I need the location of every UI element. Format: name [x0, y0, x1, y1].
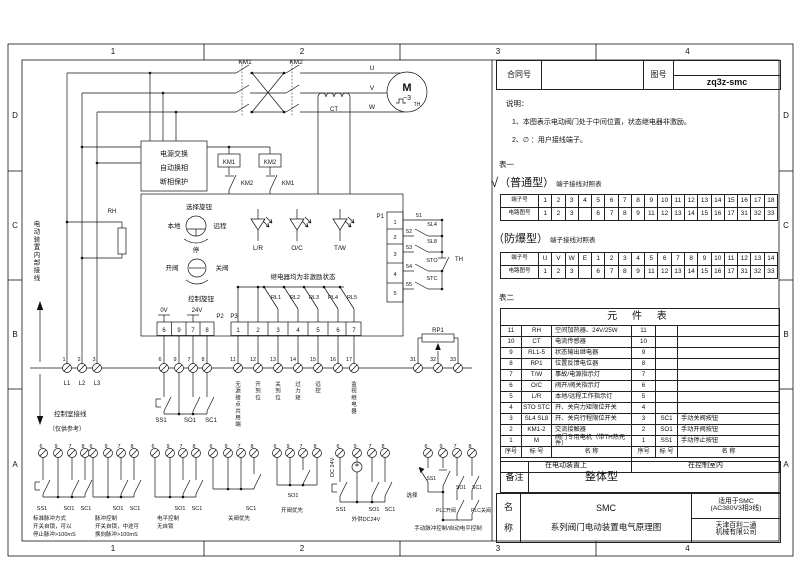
component-cell: 3: [632, 414, 656, 425]
component-cell: 电流传感器: [552, 337, 632, 348]
label-g2-n8: 8: [130, 444, 133, 450]
component-cell: L/R: [522, 392, 552, 403]
label-g1-d2: 开关自锁，可以: [33, 522, 72, 530]
label-g3-n9: 9: [166, 444, 169, 450]
label-g1-ss1: SS1: [37, 506, 47, 512]
circuit-no-cell: 33: [765, 266, 778, 279]
component-cell: 6: [501, 381, 522, 392]
component-cell: SC1: [656, 414, 678, 425]
label-g6-n7: 7: [368, 444, 371, 450]
terminal-no-cell: 5: [592, 195, 605, 208]
component-cell: 10: [632, 337, 656, 348]
circuit-no-cell: 9: [632, 208, 645, 221]
label-p1: P1: [377, 214, 385, 220]
drawing-title: 系列阀门电动装置电气原理图: [551, 523, 662, 532]
label-g1-so1: SO1: [63, 506, 74, 512]
label-g1-d3: 停止脉冲>100mS: [33, 530, 76, 538]
component-footer-header: 标 号: [656, 447, 678, 458]
label-p1-c4: 4: [393, 272, 396, 278]
terminal-no-cell: 3: [566, 195, 579, 208]
explosion-terminal-table: 端子号UVWE1234567891011121314电路图号1236789111…: [500, 252, 778, 279]
component-cell: [678, 337, 780, 348]
component-cell: 2: [501, 425, 522, 436]
label-g2-sc1: SC1: [130, 506, 141, 512]
terminal-no-cell: 11: [725, 253, 738, 266]
label-lamp-tw-label: T/W: [334, 245, 347, 252]
circuit-no-header: 电路图号: [501, 208, 539, 221]
terminal-no-cell: V: [552, 253, 565, 266]
label-tnum-16: 16: [330, 357, 336, 363]
label-l2: L2: [79, 381, 86, 387]
label-g7-n9: 9: [439, 444, 442, 450]
label-control-knob-label: 控制旋钮: [188, 294, 215, 303]
label-rl5: RL5: [347, 295, 357, 301]
label-p1-c3: 3: [393, 252, 396, 258]
component-cell: 开、关向行程限位开关: [552, 414, 632, 425]
grid-row-label-right: C: [776, 219, 796, 233]
circuit-no-cell: 6: [592, 266, 605, 279]
circuit-no-cell: 13: [672, 208, 685, 221]
label-km1-contact: KM1: [238, 59, 252, 66]
label-tnum-14: 14: [290, 357, 296, 363]
label-ov: 0V: [160, 308, 167, 314]
label-g6-dc24: DC 24V: [330, 457, 336, 477]
component-cell: 9: [501, 348, 522, 359]
label-g5-n8: 8: [313, 444, 316, 450]
label-ref-only: （仅供参考）: [49, 425, 85, 433]
component-cell: [678, 326, 780, 337]
label-g1-n6: 6: [39, 444, 42, 450]
component-cell: [678, 370, 780, 381]
component-cell: 2: [632, 425, 656, 436]
component-footer-header: 名 称: [552, 447, 632, 458]
label-g7-n7: 7: [453, 444, 456, 450]
component-cell: 手动开阀按钮: [678, 425, 780, 436]
label-phase-w: W: [369, 104, 376, 111]
component-footer-header: 名 称: [678, 447, 780, 458]
label-tnum-2: 2: [77, 357, 80, 363]
label-open-valve: 开阀: [166, 263, 179, 272]
circuit-no-cell: [579, 208, 592, 221]
circuit-no-cell: [579, 266, 592, 279]
circuit-no-cell: 17: [725, 208, 738, 221]
terminal-no-cell: 10: [712, 253, 725, 266]
label-p3-7: 7: [352, 328, 356, 334]
label-g7-sc1: SC1: [472, 485, 482, 491]
table1-caption: 表一: [499, 161, 514, 169]
label-tnum-6: 6: [158, 357, 161, 363]
label-selector-knob-label: 选择旋钮: [186, 202, 213, 211]
terminal-no-cell: 1: [539, 195, 552, 208]
terminal-no-cell: 3: [619, 253, 632, 266]
grid-row-label-left: B: [5, 328, 25, 342]
grid-col-label-bottom: 3: [488, 542, 508, 556]
label-p2: P2: [216, 314, 224, 320]
component-footer-header: 序号: [632, 447, 656, 458]
circuit-no-cell: 16: [712, 208, 725, 221]
label-g3-n7: 7: [179, 444, 182, 450]
normal-terminal-table: 端子号123456789101112131415161718电路图号123678…: [500, 194, 778, 221]
circuit-no-cell: 31: [738, 266, 751, 279]
circuit-no-cell: 1: [539, 208, 552, 221]
terminal-no-header: 端子号: [501, 195, 539, 208]
terminal-no-cell: 9: [698, 253, 711, 266]
circuit-no-cell: 16: [712, 266, 725, 279]
label-close-pos: 关到位: [275, 380, 281, 401]
label-p1-c2: 2: [393, 235, 396, 241]
component-cell: 8: [501, 359, 522, 370]
component-table-title: 元 件 表: [501, 309, 780, 326]
drawing-no-value: zq3z-smc: [674, 75, 780, 90]
label-g6-so1: SO1: [368, 507, 379, 513]
remark-value: 整体型: [529, 462, 780, 492]
terminal-no-cell: 17: [751, 195, 764, 208]
label-w55: 55: [406, 282, 412, 288]
component-cell: O/C: [522, 381, 552, 392]
component-cell: [678, 359, 780, 370]
label-so1-main: SO1: [184, 418, 197, 424]
component-cell: T/W: [522, 370, 552, 381]
label-tnum-8: 8: [201, 357, 204, 363]
circuit-no-cell: 6: [592, 208, 605, 221]
drawing-no-label: 图号: [643, 61, 673, 89]
label-open-pos: 开到位: [255, 381, 261, 401]
label-tnum-33: 33: [450, 357, 456, 363]
label-g6-n9: 9: [353, 444, 356, 450]
grid-col-label-bottom: 1: [103, 542, 123, 556]
circuit-no-cell: 2: [552, 266, 565, 279]
label-stc: STC: [427, 276, 438, 282]
label-lamp-oc-label: O/C: [291, 245, 303, 252]
circuit-no-cell: 8: [619, 208, 632, 221]
circuit-no-cell: 12: [658, 208, 671, 221]
grid-row-label-right: D: [776, 109, 796, 123]
label-g7-d1: 手动脉冲控制/自动电平控制: [414, 524, 482, 532]
label-p3-1: 1: [236, 328, 240, 334]
label-g3-sc1: SC1: [192, 506, 203, 512]
terminal-no-cell: 8: [685, 253, 698, 266]
circuit-no-cell: 13: [672, 266, 685, 279]
label-rl3: RL3: [309, 295, 319, 301]
terminal-no-cell: 11: [672, 195, 685, 208]
note-item-1: 1、本图表示电动阀门处于中间位置，状态继电器非激励。: [512, 119, 691, 126]
label-control-room-wiring: 控制室接线: [54, 409, 87, 418]
component-cell: SS1: [656, 436, 678, 447]
label-g2-d1: 脉冲控制: [95, 514, 118, 522]
product-name: SMC: [596, 504, 616, 513]
label-g2-n9: 9: [104, 444, 107, 450]
circuit-no-cell: 12: [658, 266, 671, 279]
name-char-1: 名: [504, 503, 513, 512]
component-footer-header: 序号: [501, 447, 522, 458]
component-cell: 开、关向力矩限位开关: [552, 403, 632, 414]
grid-row-label-left: A: [5, 458, 25, 472]
grid-row-label-left: D: [5, 109, 25, 123]
label-w53: 53: [406, 245, 412, 251]
label-tnum-3: 3: [92, 357, 95, 363]
label-power-line3: 断相保护: [160, 177, 188, 186]
component-cell: [656, 392, 678, 403]
label-p2-6: 6: [162, 328, 166, 334]
label-interlock-km2: KM2: [241, 181, 254, 187]
label-p3-4: 4: [296, 328, 300, 334]
terminal-no-cell: 4: [632, 253, 645, 266]
grid-row-label-right: B: [776, 328, 796, 342]
label-ss1-main: SS1: [155, 418, 167, 424]
grid-col-label-top: 2: [292, 45, 312, 59]
label-p3-6: 6: [336, 328, 340, 334]
label-g4-d1: 关阀优先: [228, 514, 251, 522]
label-remote: 远程: [214, 221, 228, 230]
drawing-header: 合同号 图号 zq3z-smc: [496, 60, 781, 90]
component-cell: 1: [501, 436, 522, 447]
label-tnum-7: 7: [187, 357, 190, 363]
terminal-no-cell: 14: [712, 195, 725, 208]
label-g4-n7: 7: [237, 444, 240, 450]
remark-row: 备注 整体型: [500, 461, 781, 493]
component-cell: RP1: [522, 359, 552, 370]
component-cell: [656, 381, 678, 392]
terminal-no-cell: 18: [765, 195, 778, 208]
label-tnum-31: 31: [410, 357, 416, 363]
terminal-no-cell: 5: [645, 253, 658, 266]
label-motor-3ph: ~3: [403, 95, 411, 102]
title-block: 名 称 SMC 系列阀门电动装置电气原理图 适用于SMC (AC380V3相3线…: [496, 493, 781, 543]
label-over-torque: 过力矩: [295, 380, 301, 401]
label-tnum-15: 15: [310, 357, 316, 363]
component-cell: RL1-5: [522, 348, 552, 359]
component-cell: STO STC: [522, 403, 552, 414]
component-cell: 8: [632, 359, 656, 370]
terminal-no-cell: 6: [658, 253, 671, 266]
component-cell: [656, 337, 678, 348]
label-rl4: RL4: [328, 295, 338, 301]
circuit-no-cell: 14: [685, 208, 698, 221]
component-cell: 3: [501, 414, 522, 425]
component-footer-header: 标 号: [522, 447, 552, 458]
component-cell: 阀门专用电机（带TH热元件）: [552, 436, 632, 447]
component-table: 元 件 表11RH空间加热器、24V/25W1110CT电流传感器109RL1-…: [500, 308, 780, 473]
component-cell: 手动关阀按钮: [678, 414, 780, 425]
component-cell: 10: [501, 337, 522, 348]
terminal-no-cell: 13: [698, 195, 711, 208]
label-l3: L3: [94, 381, 101, 387]
label-g3-so1: SO1: [174, 506, 185, 512]
label-p2-7: 7: [191, 328, 195, 334]
label-monitor-relay: 监视继电器: [351, 380, 357, 415]
component-cell: [678, 381, 780, 392]
circuit-no-cell: 15: [698, 208, 711, 221]
terminal-no-cell: 7: [672, 253, 685, 266]
label-ct: CT: [330, 107, 338, 113]
terminal-no-cell: 7: [619, 195, 632, 208]
component-cell: 状态输出继电器: [552, 348, 632, 359]
explosion-type-heading: （防爆型） 端子接线对照表: [493, 234, 596, 245]
component-cell: 位置反馈电位器: [552, 359, 632, 370]
label-km2-coil: KM2: [264, 160, 277, 166]
schematic-labels: KM1KM2UVWM~3THCT电源交换自动换相断相保护KM1KM2KM2KM1…: [33, 59, 491, 538]
terminal-no-header: 端子号: [501, 253, 539, 266]
label-relay-state-note: 继电器均为非激励状态: [271, 272, 337, 281]
component-cell: 5: [501, 392, 522, 403]
label-g3-d1: 电平控制: [157, 514, 180, 522]
label-sl8: SL8: [427, 239, 437, 245]
circuit-no-cell: 14: [685, 266, 698, 279]
component-cell: M: [522, 436, 552, 447]
terminal-no-cell: 2: [552, 195, 565, 208]
notes-title: 说明：: [506, 100, 529, 108]
grid-col-label-top: 3: [488, 45, 508, 59]
label-sc1-main: SC1: [205, 418, 217, 424]
label-p3: P3: [230, 314, 238, 320]
label-g1-n8: 8: [81, 444, 84, 450]
label-g5-n9: 9: [286, 444, 289, 450]
label-g4-n6: 6: [209, 444, 212, 450]
label-v24: 24V: [192, 308, 203, 314]
component-cell: [656, 359, 678, 370]
circuit-no-header: 电路图号: [501, 266, 539, 279]
label-close-valve: 关阀: [216, 263, 229, 272]
component-cell: SO1: [656, 425, 678, 436]
label-g6-n8: 8: [381, 444, 384, 450]
component-cell: CT: [522, 337, 552, 348]
component-cell: 5: [632, 392, 656, 403]
label-g2-n6: 6: [89, 444, 92, 450]
component-cell: [656, 326, 678, 337]
component-cell: 7: [501, 370, 522, 381]
label-motor-th: TH: [414, 102, 421, 108]
company-block: 天津百利二通 机械有限公司: [692, 518, 780, 543]
circuit-no-cell: 3: [566, 266, 579, 279]
label-tnum-1: 1: [62, 357, 65, 363]
name-column: 名 称: [497, 494, 521, 542]
table2-caption: 表二: [499, 294, 514, 302]
normal-type-heading: √ （普通型） 端子接线对照表: [491, 176, 602, 189]
label-g5-n7: 7: [299, 444, 302, 450]
drawing-no-blank: [674, 61, 780, 75]
label-g5-d1: 开阀优先: [281, 506, 304, 514]
component-cell: 11: [632, 326, 656, 337]
label-g6-n6: 6: [336, 444, 339, 450]
component-cell: 6: [632, 381, 656, 392]
circuit-no-cell: 32: [751, 208, 764, 221]
label-g7-n8: 8: [468, 444, 471, 450]
label-remote-ctrl: 远控: [315, 380, 321, 395]
label-tnum-11: 11: [230, 357, 236, 363]
terminal-no-cell: U: [539, 253, 552, 266]
circuit-no-cell: 9: [632, 266, 645, 279]
circuit-no-cell: 7: [605, 266, 618, 279]
circuit-no-cell: 1: [539, 266, 552, 279]
label-g7-select: 选择: [406, 491, 418, 499]
terminal-no-cell: 16: [738, 195, 751, 208]
label-g1-n7: 7: [68, 444, 71, 450]
circuit-no-cell: 17: [725, 266, 738, 279]
label-w54: 54: [406, 264, 412, 270]
terminal-no-cell: 12: [738, 253, 751, 266]
terminal-no-cell: E: [579, 253, 592, 266]
component-cell: 11: [501, 326, 522, 337]
component-cell: 7: [632, 370, 656, 381]
grid-row-label-left: C: [5, 219, 25, 233]
company-cell: 适用于SMC (AC380V3相3线) 天津百利二通 机械有限公司: [692, 494, 780, 542]
remark-label: 备注: [501, 462, 529, 492]
contract-no-value: [541, 61, 643, 89]
circuit-no-cell: 32: [751, 266, 764, 279]
label-g7-plc-open: PLC开阀: [436, 507, 456, 514]
label-g2-so1: SO1: [112, 506, 123, 512]
circuit-no-cell: 15: [698, 266, 711, 279]
label-phase-u: U: [370, 65, 375, 72]
circuit-no-cell: 31: [738, 208, 751, 221]
component-cell: 4: [501, 403, 522, 414]
label-g1-sc1: SC1: [81, 506, 92, 512]
circuit-no-cell: 7: [605, 208, 618, 221]
component-cell: RH: [522, 326, 552, 337]
component-cell: 事故/电源指示灯: [552, 370, 632, 381]
label-g5-n6: 6: [273, 444, 276, 450]
component-cell: 4: [632, 403, 656, 414]
label-interlock-km1: KM1: [282, 181, 295, 187]
component-cell: [656, 403, 678, 414]
label-g2-n7: 7: [117, 444, 120, 450]
check-mark: √: [491, 176, 498, 189]
company-line-2: 机械有限公司: [716, 530, 757, 537]
terminal-no-cell: 10: [658, 195, 671, 208]
label-g7-n6: 6: [424, 444, 427, 450]
label-sl4: SL4: [427, 222, 437, 228]
label-p3-3: 3: [276, 328, 280, 334]
component-cell: 1: [632, 436, 656, 447]
grid-col-label-top: 1: [103, 45, 123, 59]
circuit-no-cell: 11: [645, 266, 658, 279]
label-th-contact: TH: [455, 257, 463, 263]
applicable-block: 适用于SMC (AC380V3相3线): [692, 494, 780, 518]
component-cell: 空间加热器、24V/25W: [552, 326, 632, 337]
note-item-2: 2、∅ ：用户接线端子。: [512, 137, 587, 144]
circuit-no-cell: 8: [619, 266, 632, 279]
label-p1-c1: 1: [393, 220, 396, 226]
label-tnum-12: 12: [250, 357, 256, 363]
terminal-no-cell: 13: [751, 253, 764, 266]
label-g7-ss1: SS1: [427, 476, 437, 482]
label-g4-sc1: SC1: [246, 506, 257, 512]
explosion-type-subtitle: 端子接线对照表: [550, 238, 596, 245]
label-g2-d3: 换向脉冲>100mS: [95, 530, 138, 538]
terminal-no-cell: 1: [592, 253, 605, 266]
terminal-no-cell: 6: [605, 195, 618, 208]
component-cell: SL4 SL8: [522, 414, 552, 425]
label-w51: 51: [416, 213, 422, 219]
component-cell: 9: [632, 348, 656, 359]
component-cell: KM1-2: [522, 425, 552, 436]
drawing-sheet: KM1KM2UVWM~3THCT电源交换自动换相断相保护KM1KM2KM2KM1…: [0, 0, 800, 566]
label-motor-m: M: [402, 82, 411, 94]
label-internal-wiring: 电动装置内部接线: [34, 219, 41, 282]
label-power-line1: 电源交换: [160, 149, 188, 158]
label-sto: STO: [426, 258, 438, 264]
label-stop: 停: [193, 245, 200, 254]
label-p3-5: 5: [316, 328, 320, 334]
label-w52: 52: [406, 229, 412, 235]
terminal-no-cell: 12: [685, 195, 698, 208]
label-g3-n6: 6: [151, 444, 154, 450]
component-cell: [678, 348, 780, 359]
label-g6-ss1: SS1: [336, 507, 346, 513]
circuit-no-cell: 11: [645, 208, 658, 221]
label-g4-n8: 8: [250, 444, 253, 450]
terminal-no-cell: 15: [725, 195, 738, 208]
